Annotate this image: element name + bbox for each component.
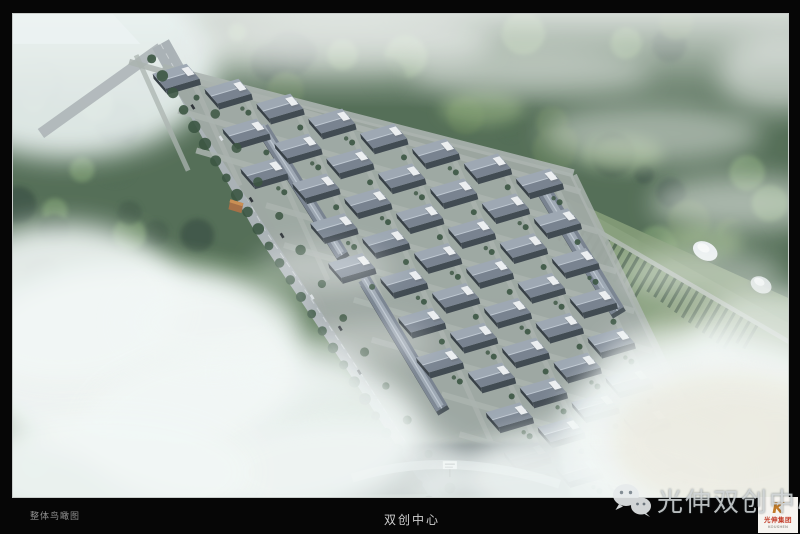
logo-company-latin: KOUSHEN (768, 525, 788, 529)
aerial-rendering-photo (12, 13, 789, 498)
wechat-icon (612, 482, 652, 518)
page: { "frame": { "caption_left": "整体鸟瞰图", "c… (0, 0, 800, 534)
tint (13, 14, 788, 497)
aerial-scene-svg (13, 14, 788, 497)
watermark-text: 光伸双创中心 (657, 482, 800, 519)
watermark: 光伸双创中心 (612, 482, 800, 518)
caption-overall-birdview: 整体鸟瞰图 (30, 509, 80, 522)
caption-center-title: 双创中心 (384, 511, 440, 528)
